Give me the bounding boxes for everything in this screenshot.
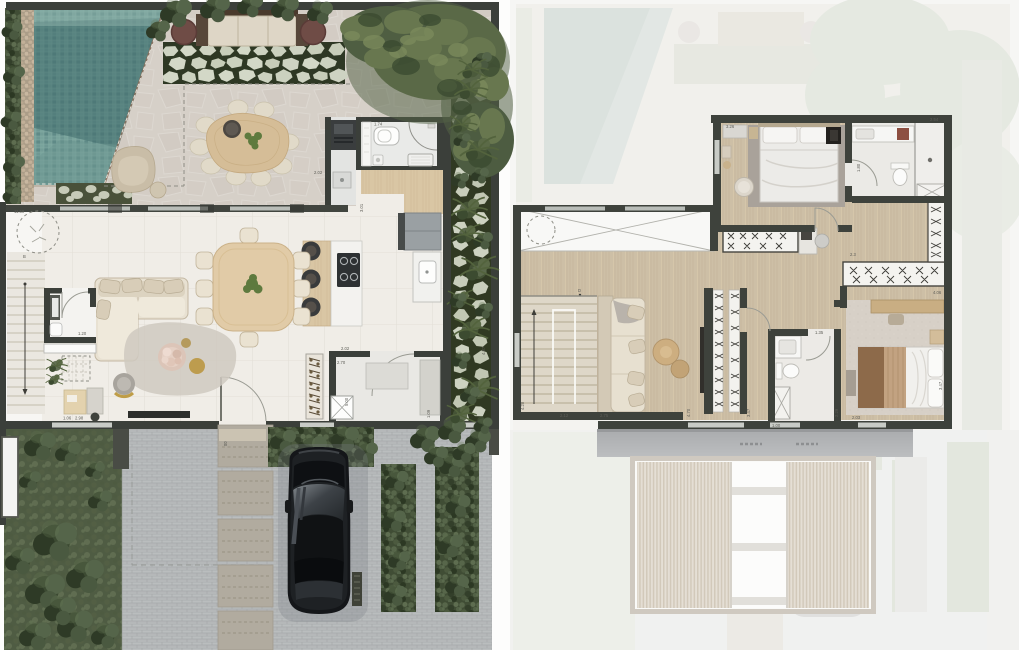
svg-text:2.3: 2.3 <box>850 252 856 257</box>
svg-text:1.09: 1.09 <box>426 409 431 418</box>
svg-text:1.80: 1.80 <box>856 163 861 172</box>
svg-text:D: D <box>578 288 581 293</box>
svg-text:3.47: 3.47 <box>746 408 751 417</box>
svg-text:3.01: 3.01 <box>359 203 364 212</box>
svg-text:4.06: 4.06 <box>933 290 942 295</box>
svg-text:2.54: 2.54 <box>930 117 939 122</box>
svg-text:B: B <box>23 254 26 259</box>
svg-text:4.87: 4.87 <box>481 346 486 355</box>
svg-text:3.26: 3.26 <box>726 124 735 129</box>
svg-text:4.20: 4.20 <box>520 401 525 410</box>
svg-text:11.59: 11.59 <box>14 209 25 214</box>
svg-text:1.00: 1.00 <box>772 423 781 428</box>
svg-text:2.98: 2.98 <box>75 416 84 421</box>
svg-text:2.12: 2.12 <box>560 413 569 418</box>
svg-text:1.35: 1.35 <box>815 330 824 335</box>
svg-text:4.70: 4.70 <box>686 408 691 417</box>
svg-text:1.74: 1.74 <box>374 122 383 127</box>
svg-text:3.47: 3.47 <box>938 381 943 390</box>
svg-text:2.02: 2.02 <box>314 170 323 175</box>
svg-text:1.06: 1.06 <box>63 416 72 421</box>
svg-text:2.75: 2.75 <box>600 413 609 418</box>
svg-text:2.29: 2.29 <box>834 408 839 417</box>
svg-text:2.03: 2.03 <box>852 415 861 420</box>
svg-text:2.70: 2.70 <box>337 360 346 365</box>
svg-text:5.00: 5.00 <box>344 397 349 406</box>
svg-text:2.02: 2.02 <box>341 346 350 351</box>
svg-text:1.20: 1.20 <box>78 331 87 336</box>
